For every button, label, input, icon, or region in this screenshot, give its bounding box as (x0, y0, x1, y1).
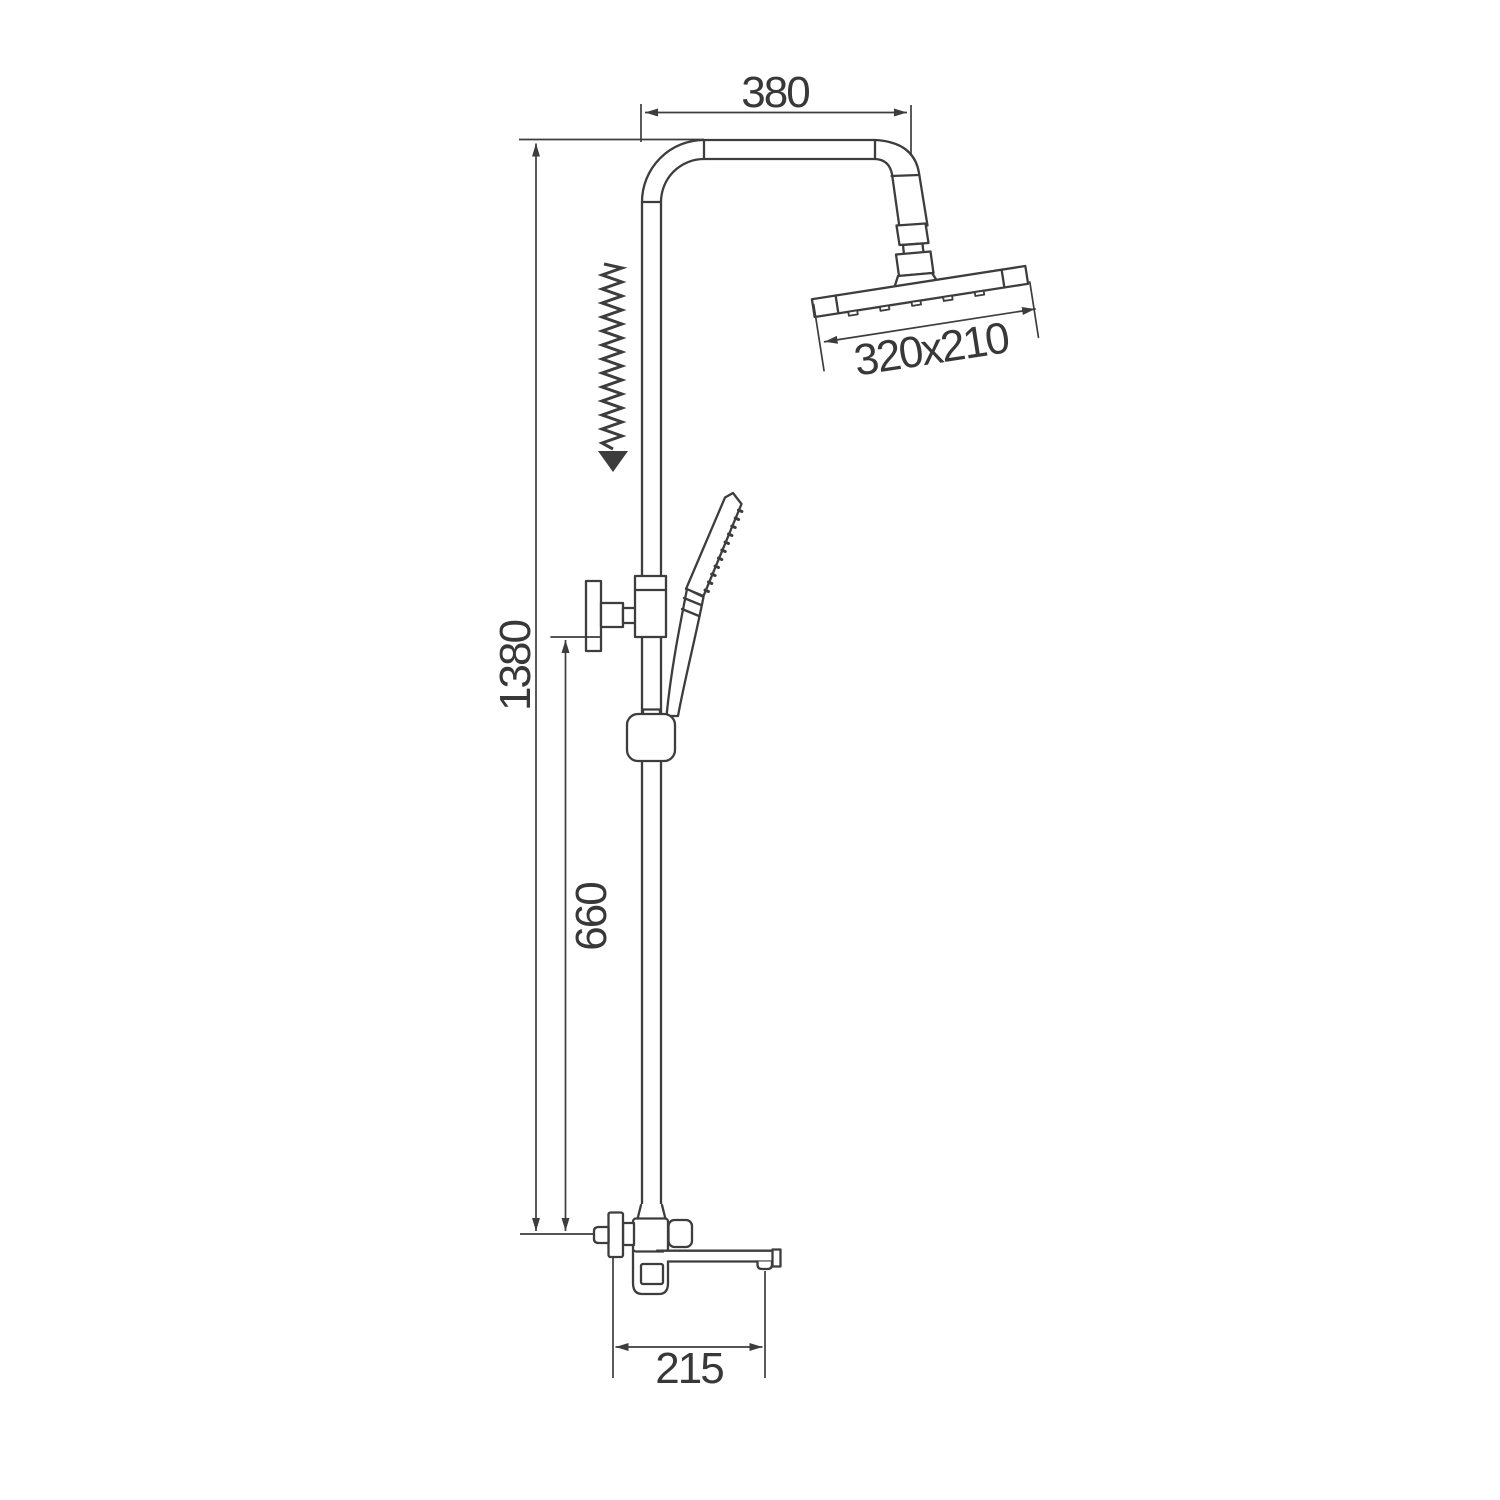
connector-ring (897, 224, 929, 246)
spout-outlet (758, 1262, 773, 1270)
overhead-connector (895, 224, 937, 288)
hand-shower-handle (667, 589, 704, 716)
dim-head-size-label: 320x210 (851, 313, 1012, 385)
shower-column-technical-drawing: 320x210 (0, 0, 1500, 1500)
height-adjust-arrow (598, 264, 628, 472)
down-arrowhead-icon (598, 451, 628, 472)
mixer-valve (594, 1204, 781, 1294)
pole-sleeve (635, 576, 666, 637)
slider-body (627, 714, 675, 761)
mixer-right-knob (669, 1220, 693, 1247)
mixer-left-knob (594, 1227, 609, 1243)
drawing-canvas: 320x210 (0, 0, 1500, 1500)
mixer-body (633, 1219, 668, 1252)
mixer-lower-inset (641, 1264, 663, 1284)
bath-spout (657, 1250, 781, 1270)
hand-shower (667, 493, 742, 716)
mixer-left-step (623, 1223, 634, 1245)
overhead-shower-head: 320x210 (812, 266, 1043, 391)
mixer-left-plate (609, 1213, 624, 1258)
bracket-plate (586, 581, 601, 651)
pipe-seam-arm (892, 175, 919, 176)
bracket-block (601, 603, 623, 627)
zigzag-line (602, 264, 622, 449)
dim-1380-label: 1380 (491, 621, 540, 711)
slider-holder (627, 710, 675, 762)
dim-215-label: 215 (655, 1344, 723, 1393)
spout-fill (664, 1252, 774, 1261)
spout-end-cap (773, 1250, 781, 1267)
dim-380-label: 380 (741, 68, 809, 117)
dim-660-label: 660 (567, 883, 616, 951)
hand-shower-head (686, 493, 742, 596)
